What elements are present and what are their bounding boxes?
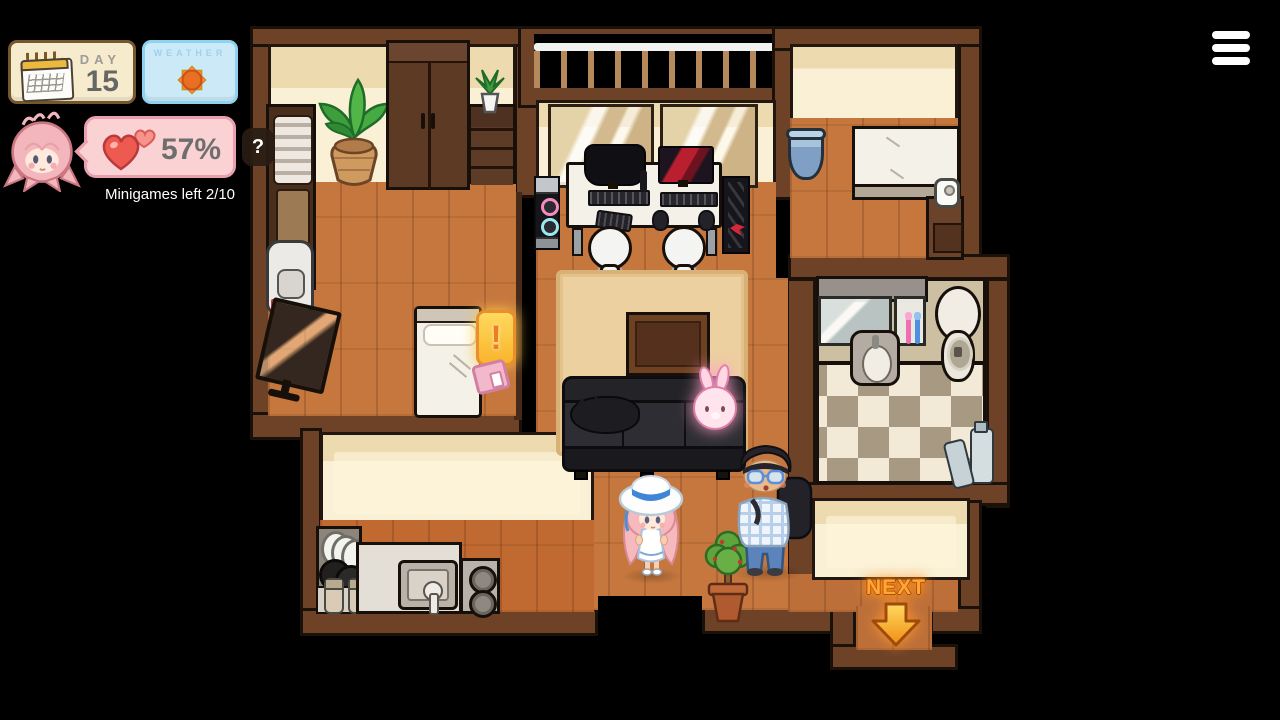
brush-head <box>914 312 921 320</box>
menu-bar <box>1212 57 1250 65</box>
pc-top <box>536 178 558 194</box>
alert-badge-text: ! <box>490 319 501 358</box>
next-button[interactable]: NEXT <box>846 576 946 654</box>
pc-fan <box>541 198 559 216</box>
monitor-gaming <box>658 146 714 184</box>
toothbrush-blue <box>915 318 920 344</box>
bed-crease <box>890 169 904 180</box>
cat-ear <box>590 390 602 405</box>
diary-strap <box>489 370 505 388</box>
sink-faucet <box>872 335 879 349</box>
hamburger-menu-icon[interactable] <box>1212 31 1254 67</box>
monitor-wallpaper-red <box>660 148 712 182</box>
bunny-eye <box>721 406 725 412</box>
jar-lid <box>326 580 342 590</box>
doorway-opening <box>598 596 702 680</box>
bathroom-sink <box>850 330 900 386</box>
faucet-stem <box>429 593 439 615</box>
bottle-pump <box>974 421 988 433</box>
toilet-bowl <box>941 330 975 382</box>
keyboard <box>660 192 718 207</box>
shampoo-bottles <box>944 424 996 486</box>
player-avatar[interactable] <box>2 108 82 192</box>
balcony-rail <box>534 43 778 51</box>
dresser-drawers <box>471 127 513 185</box>
nightstand-lower <box>933 223 963 253</box>
couch-foot <box>574 470 588 480</box>
couch-cushion-line <box>684 402 686 448</box>
bed-headboard <box>417 309 479 323</box>
heart-icon <box>97 125 161 173</box>
bunny-muzzle <box>711 412 720 419</box>
bottle <box>970 428 994 484</box>
guy-character[interactable] <box>722 442 814 578</box>
pc-vent-lines <box>728 182 744 248</box>
wardrobe-handle <box>421 113 425 129</box>
minigames-status: Minigames left 2/10 <box>58 186 282 203</box>
weather-label: WEATHER <box>145 48 235 58</box>
balcony-slats <box>534 51 778 88</box>
down-arrow-icon <box>869 602 923 648</box>
bed-single <box>414 306 482 418</box>
day-value: 15 <box>86 65 119 99</box>
question-text: ? <box>252 136 264 159</box>
toilet <box>934 286 982 384</box>
bedroom-right-wallpaper <box>790 44 958 122</box>
calendar-grid <box>26 73 64 93</box>
toilet-flush <box>954 347 962 357</box>
kitchen-wallpaper-panel <box>334 452 580 514</box>
kitchen-sink <box>398 560 458 610</box>
wardrobe <box>386 40 470 190</box>
bucket-rim <box>786 128 826 140</box>
hanging-clothes <box>273 115 313 185</box>
girl-character[interactable] <box>616 468 686 580</box>
toothbrush-pink <box>906 318 911 344</box>
tv-table-top <box>635 321 701 367</box>
bunny-plush[interactable] <box>688 366 742 432</box>
affection-panel: 57% <box>84 116 236 178</box>
toilet-paper-hole <box>944 185 955 196</box>
menu-bar <box>1212 44 1250 52</box>
exclamation-icon[interactable]: ! <box>476 310 516 366</box>
day-panel: DAY 15 <box>8 40 136 104</box>
bed-pillow <box>423 324 477 346</box>
rog-logo <box>730 224 745 236</box>
brush-head <box>905 312 912 320</box>
pc-tower-white <box>534 176 560 250</box>
bed-crease <box>886 137 900 148</box>
sleeping-cat[interactable] <box>570 392 638 434</box>
large-potted-plant <box>314 74 394 190</box>
cat-ear <box>576 392 588 407</box>
weather-panel: WEATHER <box>142 40 238 104</box>
affection-value: 57% <box>161 133 221 167</box>
small-plant <box>470 66 510 116</box>
calendar-icon <box>20 50 72 99</box>
pc-base <box>536 237 558 248</box>
pc-fan <box>541 218 559 236</box>
monitor-stand <box>608 182 618 189</box>
desk-leg <box>572 228 583 256</box>
toilet-paper-roll <box>934 178 960 208</box>
monitor-stand <box>678 180 688 187</box>
monitor-ultrawide <box>584 144 646 186</box>
bunny-eye <box>705 406 709 412</box>
desk-leg <box>706 228 717 256</box>
spice-jar <box>324 578 344 614</box>
hallway-wall-panel-inner <box>826 516 956 568</box>
keyboard <box>588 190 650 206</box>
sun-icon <box>173 61 211 99</box>
game-screen: ! <box>0 0 1280 720</box>
pc-tower-black <box>722 176 750 254</box>
question-mark-icon[interactable]: ? <box>242 128 274 166</box>
sink-basin <box>862 345 892 383</box>
bunny-head <box>693 386 737 430</box>
wardrobe-top <box>389 43 467 63</box>
menu-bar <box>1212 31 1250 39</box>
wardrobe-handle <box>431 113 435 129</box>
blue-bucket <box>786 128 826 182</box>
desk-microphone <box>640 170 647 192</box>
backpack-pocket <box>277 269 305 299</box>
next-label: NEXT <box>846 576 946 600</box>
stove-burner <box>469 590 497 618</box>
stove <box>460 558 500 614</box>
